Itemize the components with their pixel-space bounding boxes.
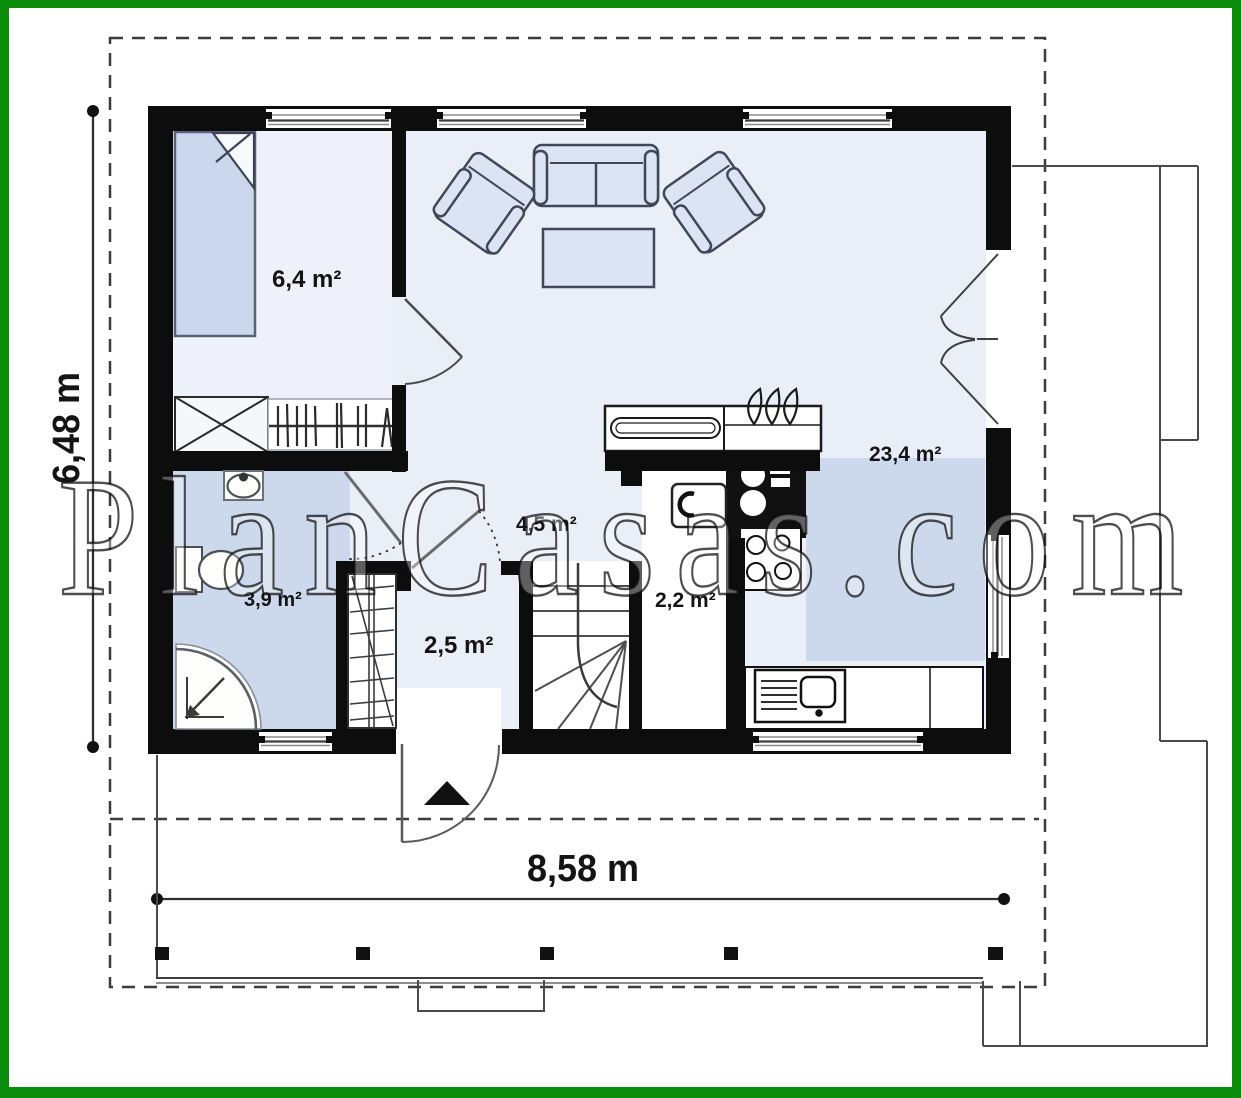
- svg-text:6,4 m²: 6,4 m²: [272, 266, 341, 293]
- svg-text:2,5 m²: 2,5 m²: [424, 632, 493, 659]
- svg-text:PlanCasas.com: PlanCasas.com: [58, 443, 1183, 632]
- svg-text:8,58 m: 8,58 m: [527, 848, 639, 890]
